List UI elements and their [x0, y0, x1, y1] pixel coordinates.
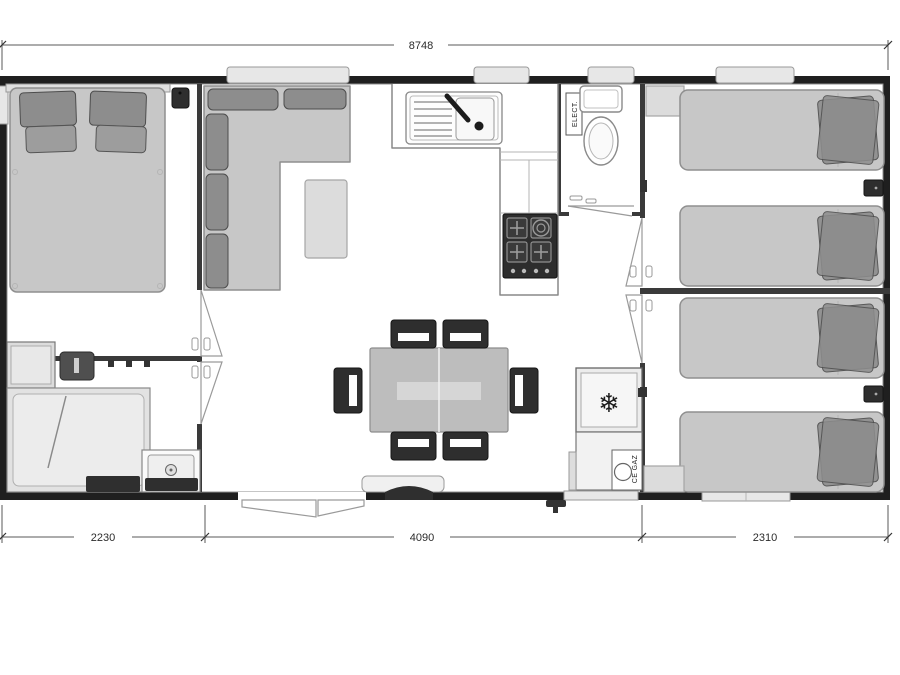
bedroom-side-dimension: 2230	[91, 532, 115, 544]
pillow	[817, 95, 879, 165]
bedside-shelf	[864, 386, 883, 402]
wall-hook	[144, 360, 150, 367]
window-living	[227, 67, 349, 83]
chair	[334, 368, 362, 413]
bathroom	[7, 342, 200, 492]
chair	[510, 368, 538, 413]
sofa-cushion	[284, 89, 346, 109]
pillow	[89, 91, 146, 127]
water-heater-cabinet-inner	[11, 346, 51, 384]
entrance-opening	[238, 492, 366, 500]
shelf	[646, 86, 684, 116]
pillow	[26, 125, 77, 153]
bedroom-2-door	[626, 218, 642, 286]
sink-drain	[475, 122, 484, 131]
pillow	[19, 91, 76, 127]
pillow	[817, 303, 879, 373]
bedside-light	[172, 88, 189, 108]
kitchen	[392, 84, 558, 295]
gas-hob	[503, 214, 557, 278]
bedroom-3-door	[626, 295, 642, 363]
entrance-door-leaf	[318, 500, 364, 516]
toilet	[580, 86, 622, 165]
window-kitchen	[474, 67, 529, 83]
entrance-door-leaf	[242, 500, 316, 517]
shower-tray	[13, 394, 144, 486]
pillow	[817, 211, 879, 281]
window-bedroom-2	[716, 67, 794, 83]
wc-door	[568, 206, 632, 216]
sofa-cushion	[206, 234, 228, 288]
wall-hook	[108, 360, 114, 367]
basin-handle	[74, 358, 79, 373]
corridor: ❄ CE GAZ	[569, 218, 652, 490]
top-dimension: 8748	[0, 40, 892, 70]
pillow	[96, 125, 147, 153]
master-bedroom	[6, 84, 189, 292]
sink-bowl	[456, 98, 494, 140]
window-wc	[588, 67, 634, 83]
sofa-cushion	[206, 114, 228, 170]
overall-width-dimension: 8748	[409, 40, 433, 52]
shelf	[644, 466, 684, 492]
snowflake-icon: ❄	[598, 389, 620, 419]
wall-hook	[126, 360, 132, 367]
sofa-cushion	[206, 174, 228, 230]
pillow	[817, 417, 879, 487]
light-switch	[640, 387, 647, 397]
twin-bedrooms-dimension: 2310	[753, 532, 777, 544]
sofa-cushion	[208, 89, 278, 110]
vanity-front	[145, 478, 198, 491]
bottom-dimension: 2230 4090 2310	[0, 505, 892, 544]
dining-area	[334, 320, 538, 460]
fridge: ❄	[576, 368, 644, 432]
gas-locker: CE GAZ	[569, 432, 642, 490]
living-area-dimension: 4090	[410, 532, 434, 544]
light-switch	[640, 180, 647, 192]
living-room	[204, 86, 350, 290]
floor-plan-page: 8748 2230 4090 2310	[0, 0, 900, 675]
electrical-box-label: ELECT.	[572, 101, 579, 127]
exterior-step	[546, 500, 566, 507]
gas-locker-exterior-door	[564, 491, 638, 500]
floor-plan: 8748 2230 4090 2310	[0, 0, 900, 675]
bedroom-3	[640, 298, 884, 492]
gas-bottle	[615, 464, 632, 481]
gas-locker-label: CE GAZ	[632, 454, 639, 483]
bath-mat	[86, 476, 140, 492]
coffee-table	[305, 180, 347, 258]
bedroom-2	[640, 86, 884, 286]
bedside-shelf	[864, 180, 883, 196]
wc-room: ELECT.	[566, 86, 634, 216]
